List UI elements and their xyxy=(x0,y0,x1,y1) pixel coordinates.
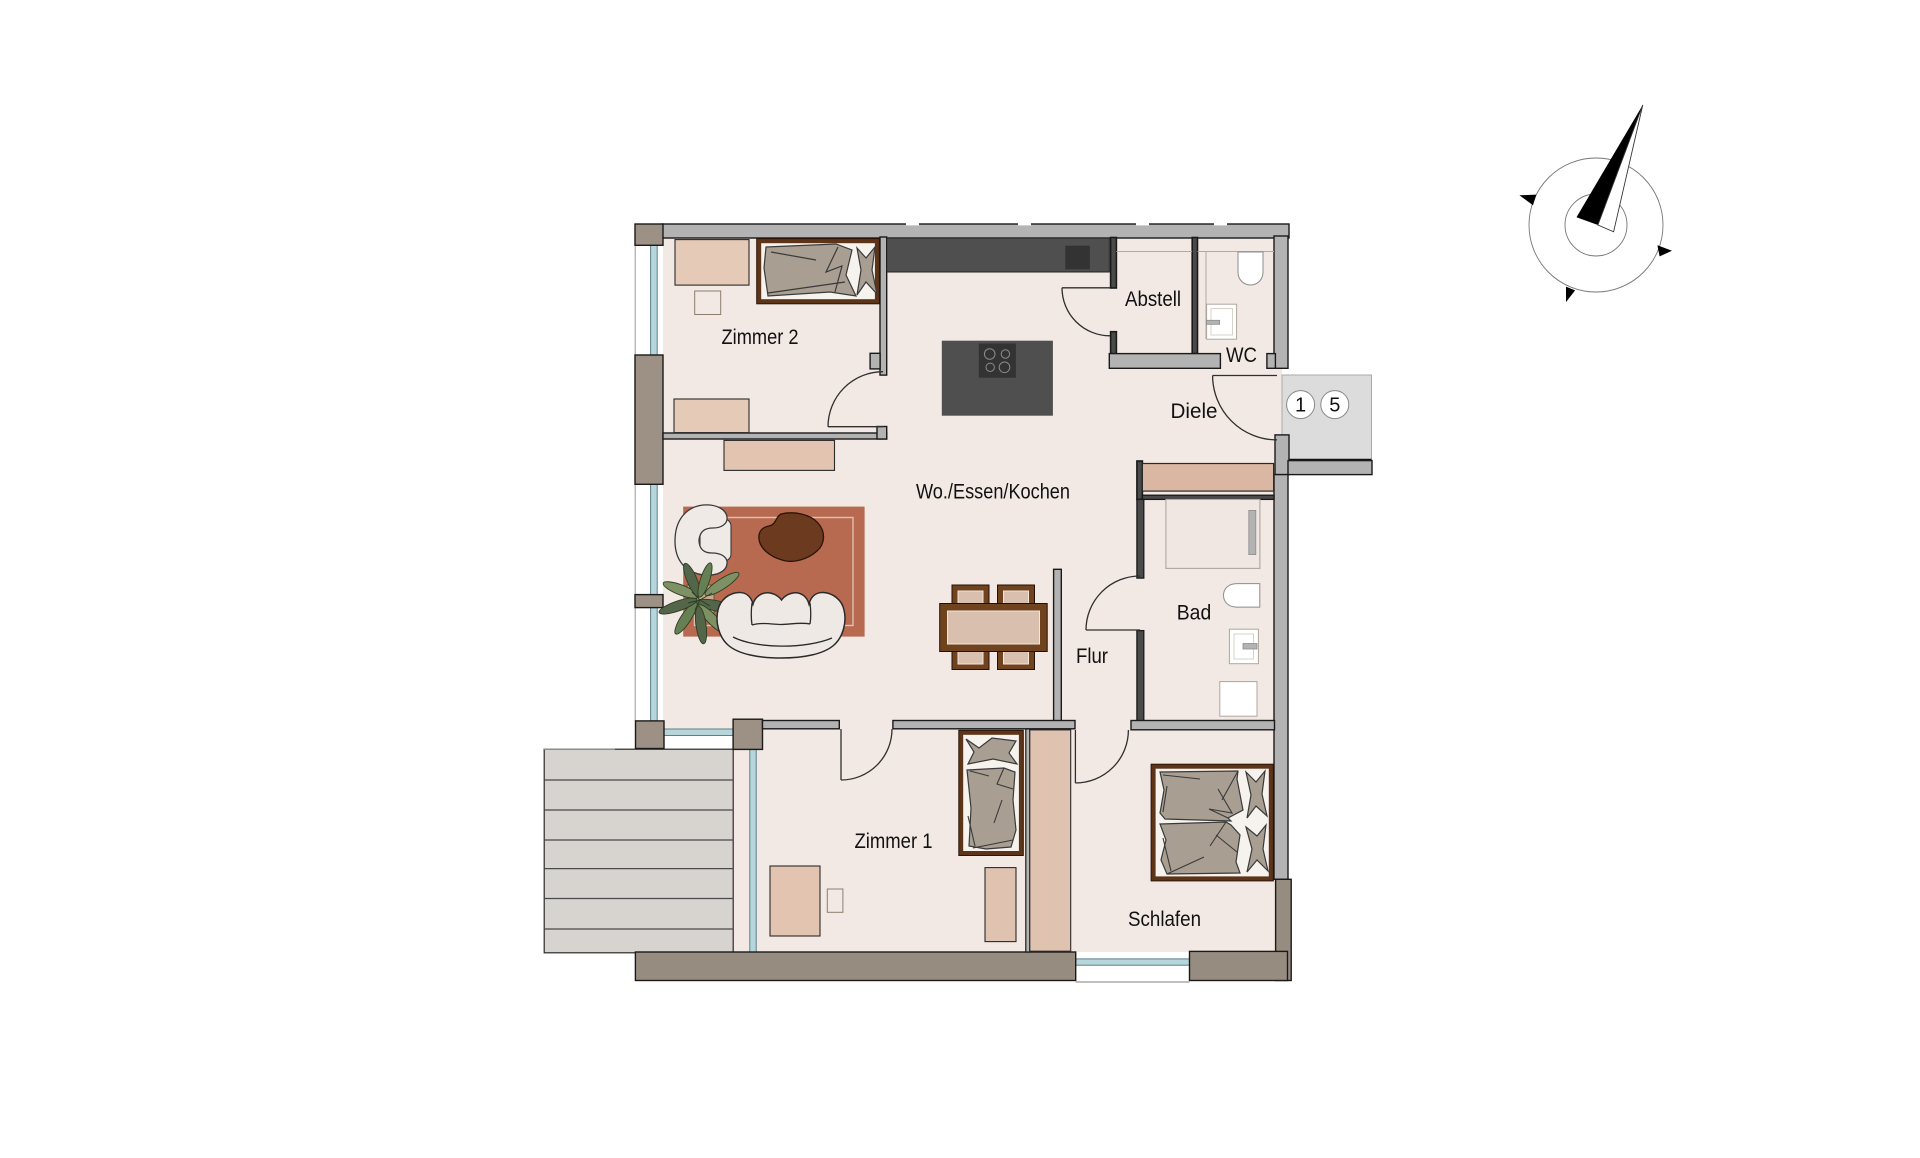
svg-text:Diele: Diele xyxy=(1171,399,1218,423)
svg-text:Zimmer 2: Zimmer 2 xyxy=(722,325,799,349)
svg-text:WC: WC xyxy=(1226,343,1257,367)
svg-text:Abstell: Abstell xyxy=(1125,287,1181,311)
svg-text:Wo./Essen/Kochen: Wo./Essen/Kochen xyxy=(916,480,1070,504)
svg-text:Bad: Bad xyxy=(1177,601,1212,625)
svg-text:1: 1 xyxy=(1295,395,1306,417)
svg-text:Zimmer 1: Zimmer 1 xyxy=(855,829,933,853)
svg-text:Flur: Flur xyxy=(1076,644,1108,668)
svg-text:Schlafen: Schlafen xyxy=(1128,907,1201,931)
svg-text:5: 5 xyxy=(1329,395,1340,417)
